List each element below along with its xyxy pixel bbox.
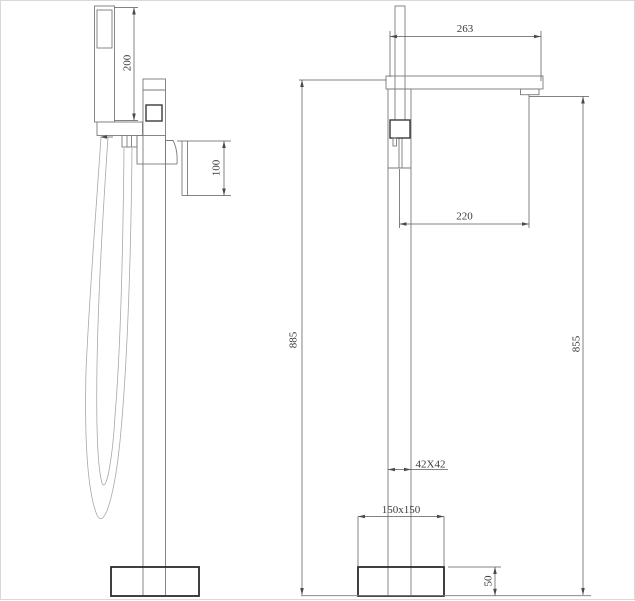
hose-connector — [122, 136, 137, 148]
down-arrow-icon — [300, 588, 304, 595]
spout-outlet — [521, 89, 540, 95]
riser-pipe — [395, 6, 405, 120]
dimension-base-height: 50 — [448, 567, 501, 596]
dimension-outlet-offset: 220 — [400, 95, 530, 228]
right-arrow-icon — [437, 515, 444, 519]
dimension-spout-reach: 263 — [390, 23, 541, 81]
handle-neck — [166, 141, 178, 165]
left-arrow-icon — [388, 468, 395, 472]
base-plate-front — [358, 567, 444, 596]
handheld-shower — [95, 6, 115, 122]
column-body — [143, 79, 166, 567]
dimension-base-plate: 150x150 — [358, 504, 444, 567]
up-arrow-icon — [132, 8, 136, 15]
base-plate-side-outline — [111, 567, 199, 596]
dimension-shower-height: 200 — [115, 8, 139, 121]
front-view: 263 220 885 855 — [288, 6, 592, 596]
dimension-200-label: 200 — [122, 54, 134, 71]
dimension-100-label: 100 — [211, 159, 223, 176]
dimension-885-label: 885 — [288, 331, 300, 348]
up-arrow-icon — [222, 141, 226, 148]
dimension-outlet-height: 855 — [529, 97, 589, 596]
left-arrow-icon — [358, 515, 365, 519]
dimension-263-label: 263 — [457, 23, 474, 35]
technical-drawing-page: 200 100 — [0, 0, 635, 600]
shower-hose-outer — [86, 137, 132, 519]
column-body-front — [388, 89, 411, 567]
down-arrow-icon — [132, 114, 136, 121]
base-plate-side — [111, 567, 199, 596]
dimension-150x150-label: 150x150 — [382, 504, 421, 516]
down-arrow-icon — [222, 189, 226, 196]
down-arrow-icon — [493, 589, 497, 596]
spout-beam — [386, 76, 543, 89]
up-arrow-icon — [493, 567, 497, 574]
side-view: 200 100 — [86, 6, 231, 596]
handheld-shower-body — [95, 6, 115, 122]
dimension-42x42-label: 42X42 — [416, 459, 446, 471]
dimension-handle-drop: 100 — [188, 141, 232, 196]
dimension-column-section: 42X42 — [388, 459, 448, 472]
right-arrow-icon — [534, 35, 541, 39]
right-arrow-icon — [522, 222, 529, 226]
diverter-square — [146, 105, 162, 121]
valve-collar — [137, 136, 166, 165]
faucet-column-side — [137, 79, 177, 567]
handheld-shower-spray-face — [97, 10, 112, 48]
handle-front — [390, 120, 410, 146]
base-plate-front-outline — [358, 567, 444, 596]
handle-stub — [393, 138, 397, 146]
dimension-220-label: 220 — [456, 211, 473, 223]
left-arrow-icon — [390, 35, 397, 39]
up-arrow-icon — [581, 97, 585, 104]
faucet-column-front — [388, 89, 411, 567]
down-arrow-icon — [581, 588, 585, 595]
dimension-855-label: 855 — [571, 335, 583, 352]
hose-connector-body — [122, 136, 137, 148]
handle-grip — [182, 141, 188, 196]
shower-hose-inner — [97, 137, 124, 485]
handle-side — [166, 141, 188, 196]
left-arrow-icon — [400, 222, 407, 226]
shower-holder-bracket — [97, 122, 143, 136]
dimension-50-label: 50 — [483, 575, 495, 587]
handle-block — [390, 120, 410, 138]
right-arrow-icon — [404, 468, 411, 472]
up-arrow-icon — [300, 80, 304, 87]
faucet-dimension-drawing: 200 100 — [1, 1, 635, 601]
dimension-overall-height: 885 — [288, 80, 387, 595]
